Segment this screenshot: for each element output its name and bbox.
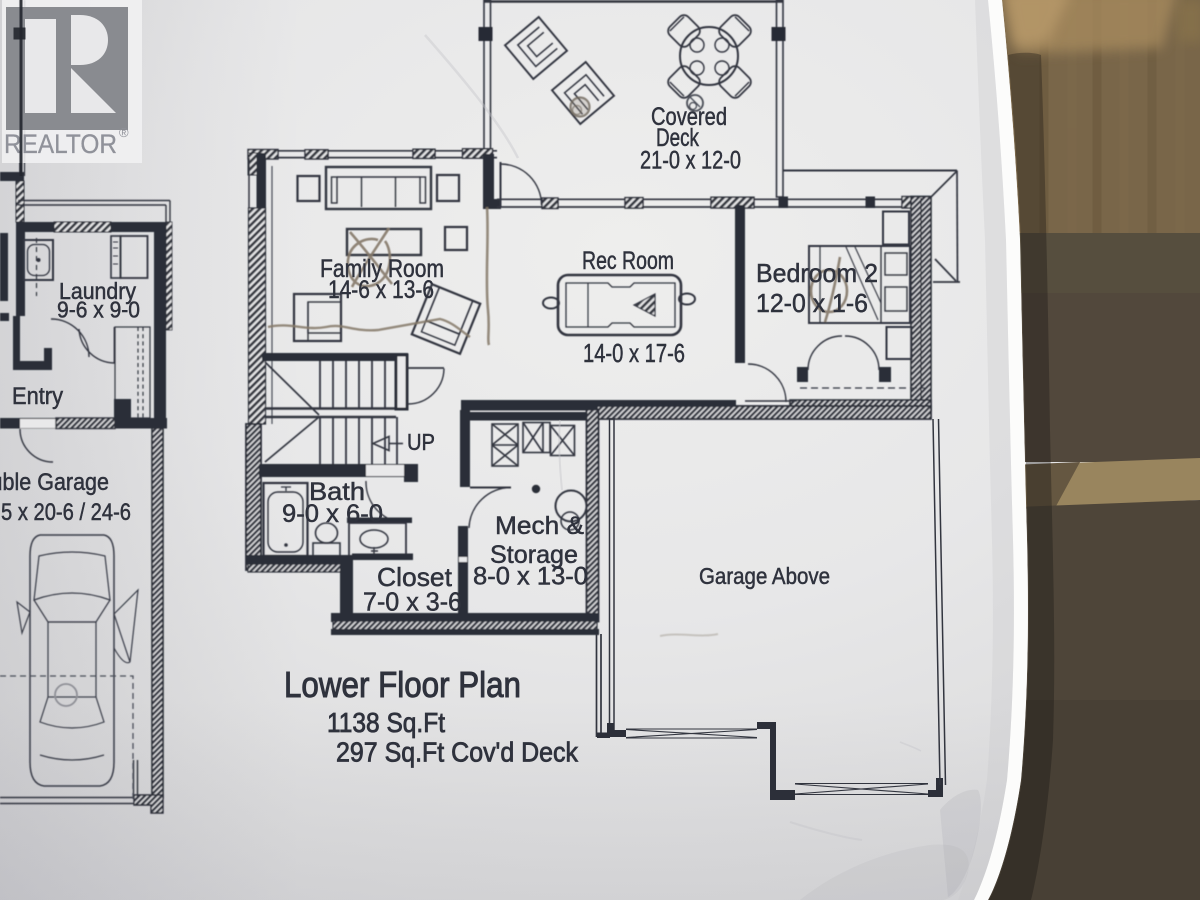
svg-text:®: ® [119,125,129,140]
svg-text:21-0 x 12-0: 21-0 x 12-0 [640,147,741,175]
svg-text:7-0 x 3-6: 7-0 x 3-6 [363,587,462,617]
svg-text:297 Sq.Ft Cov'd Deck: 297 Sq.Ft Cov'd Deck [336,737,579,768]
svg-text:Rec Room: Rec Room [582,247,674,275]
svg-text:Entry: Entry [12,383,63,410]
svg-text:8-0 x 13-0: 8-0 x 13-0 [473,563,588,591]
svg-text:12-0 x 1-6: 12-0 x 1-6 [756,288,868,318]
svg-text:1138 Sq.Ft: 1138 Sq.Ft [327,707,445,738]
svg-text:Lower Floor Plan: Lower Floor Plan [284,664,521,705]
svg-text:UP: UP [407,429,435,455]
svg-text:9-0 x 6-0: 9-0 x 6-0 [282,500,383,528]
svg-text:Double Garage: Double Garage [0,469,109,496]
svg-text:Bedroom 2: Bedroom 2 [756,258,878,288]
svg-text:14-0 x 17-6: 14-0 x 17-6 [583,338,685,368]
svg-text:Garage Above: Garage Above [699,563,830,589]
svg-text:9-6 x 9-0: 9-6 x 9-0 [57,297,140,323]
svg-text:Mech &: Mech & [495,512,584,540]
svg-text:5 x 20-6 / 24-6: 5 x 20-6 / 24-6 [1,499,131,526]
svg-text:14-6 x 13-6: 14-6 x 13-6 [328,276,434,304]
